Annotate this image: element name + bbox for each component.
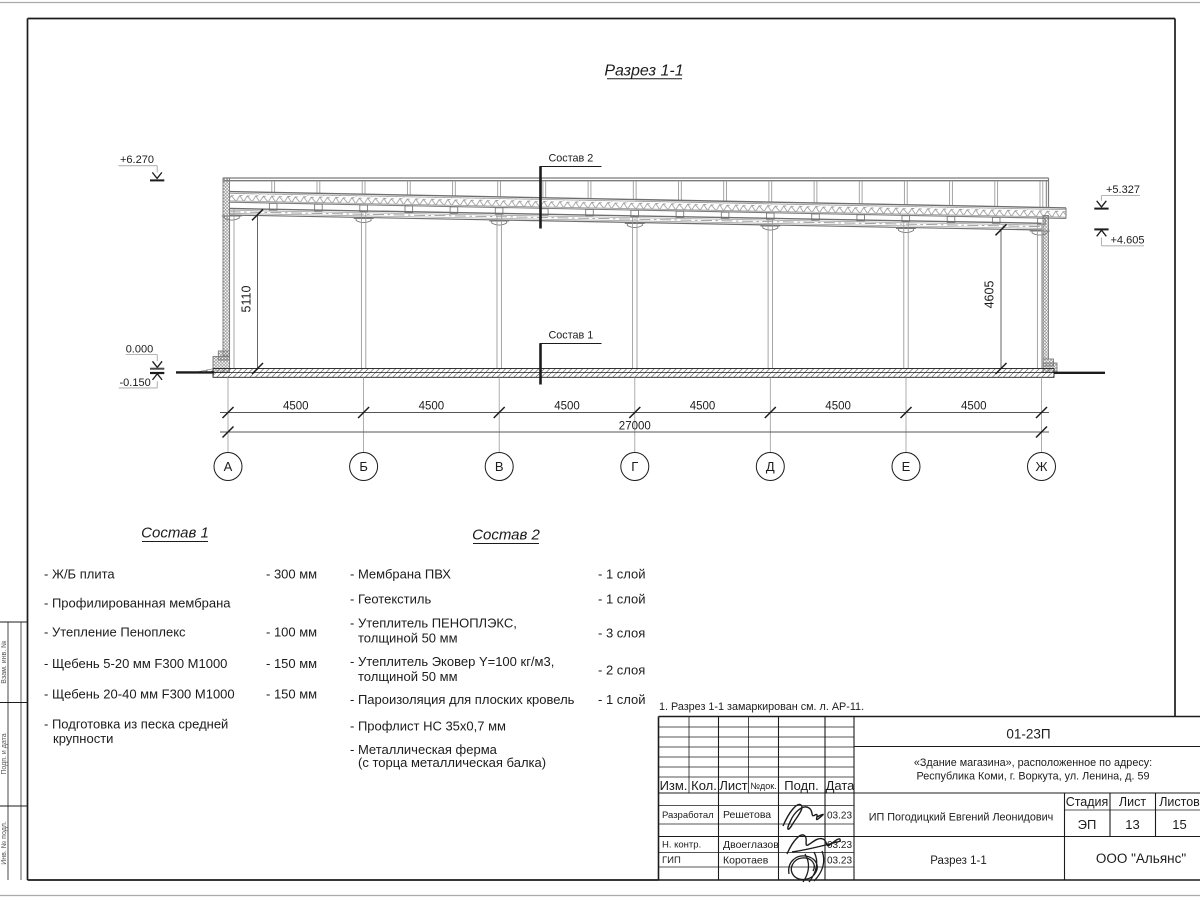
svg-text:- 300 мм: - 300 мм bbox=[266, 566, 317, 581]
svg-text:Стадия: Стадия bbox=[1066, 795, 1109, 809]
svg-text:4500: 4500 bbox=[690, 400, 716, 412]
svg-text:- 150 мм: - 150 мм bbox=[266, 656, 317, 671]
svg-text:ООО "Альянс": ООО "Альянс" bbox=[1096, 851, 1186, 866]
svg-text:4500: 4500 bbox=[419, 400, 445, 412]
svg-text:Б: Б bbox=[359, 459, 368, 474]
svg-text:13: 13 bbox=[1125, 817, 1139, 832]
svg-text:ЭП: ЭП bbox=[1078, 817, 1097, 832]
svg-text:Двоеглазов: Двоеглазов bbox=[723, 839, 779, 851]
svg-text:Состав 1: Состав 1 bbox=[141, 525, 209, 542]
svg-text:Изм.: Изм. bbox=[660, 778, 688, 793]
svg-text:03.23: 03.23 bbox=[827, 811, 852, 822]
svg-text:Состав 1: Состав 1 bbox=[549, 330, 594, 342]
svg-text:- Мембрана ПВХ: - Мембрана ПВХ bbox=[350, 566, 451, 581]
svg-text:+4.605: +4.605 bbox=[1111, 234, 1145, 246]
svg-text:4500: 4500 bbox=[554, 400, 580, 412]
svg-text:- Профлист НС 35х0,7 мм: - Профлист НС 35х0,7 мм bbox=[350, 718, 506, 733]
svg-text:+6.270: +6.270 bbox=[120, 154, 154, 166]
svg-text:В: В bbox=[495, 459, 504, 474]
svg-text:Н. контр.: Н. контр. bbox=[662, 840, 701, 851]
svg-text:крупности: крупности bbox=[53, 731, 113, 746]
svg-text:- Щебень 20-40 мм F300 М1000: - Щебень 20-40 мм F300 М1000 bbox=[44, 687, 235, 702]
svg-text:- 100 мм: - 100 мм bbox=[266, 625, 317, 640]
svg-text:толщиной 50 мм: толщиной 50 мм bbox=[358, 669, 458, 684]
svg-text:- Утепление Пеноплекс: - Утепление Пеноплекс bbox=[44, 625, 186, 640]
svg-text:15: 15 bbox=[1172, 817, 1186, 832]
svg-text:- 1 слой: - 1 слой bbox=[598, 692, 646, 707]
svg-text:- Геотекстиль: - Геотекстиль bbox=[350, 591, 431, 606]
svg-text:(с торца металлическая балка): (с торца металлическая балка) bbox=[358, 755, 546, 770]
svg-text:4500: 4500 bbox=[283, 400, 309, 412]
svg-text:27000: 27000 bbox=[619, 420, 651, 432]
svg-text:+5.327: +5.327 bbox=[1106, 184, 1140, 196]
svg-text:- Профилированная мембрана: - Профилированная мембрана bbox=[44, 595, 231, 610]
svg-text:Дата: Дата bbox=[826, 778, 856, 793]
svg-text:- 2 слоя: - 2 слоя bbox=[598, 662, 645, 677]
svg-text:- 1 слой: - 1 слой bbox=[598, 591, 646, 606]
svg-text:толщиной 50 мм: толщиной 50 мм bbox=[358, 630, 458, 645]
svg-text:- Утеплитель ПЕНОПЛЭКС,: - Утеплитель ПЕНОПЛЭКС, bbox=[350, 615, 517, 630]
svg-text:ИП Погодицкий Евгений Леонидов: ИП Погодицкий Евгений Леонидович bbox=[869, 812, 1054, 824]
svg-text:- 3 слоя: - 3 слоя bbox=[598, 626, 645, 641]
svg-text:Взам. инв. №: Взам. инв. № bbox=[1, 640, 8, 683]
svg-text:Республика Коми, г. Воркута, у: Республика Коми, г. Воркута, ул. Ленина,… bbox=[917, 771, 1150, 783]
svg-text:Состав 2: Состав 2 bbox=[472, 527, 540, 544]
svg-text:03.23: 03.23 bbox=[827, 856, 852, 867]
svg-text:- Пароизоляция для плоских кро: - Пароизоляция для плоских кровель bbox=[350, 692, 575, 707]
svg-text:Разрез 1-1: Разрез 1-1 bbox=[604, 63, 683, 80]
svg-text:Решетова: Решетова bbox=[723, 809, 771, 821]
svg-text:А: А bbox=[224, 459, 233, 474]
svg-text:01-23П: 01-23П bbox=[1006, 727, 1050, 742]
svg-text:Лист: Лист bbox=[1119, 795, 1146, 809]
svg-text:Д: Д bbox=[766, 459, 775, 474]
svg-text:Г: Г bbox=[631, 459, 638, 474]
svg-text:Кол.: Кол. bbox=[691, 778, 717, 793]
svg-text:4500: 4500 bbox=[825, 400, 851, 412]
svg-text:Состав 2: Состав 2 bbox=[549, 153, 594, 165]
svg-text:4500: 4500 bbox=[961, 400, 987, 412]
svg-text:- Подготовка из песка средней: - Подготовка из песка средней bbox=[44, 716, 228, 731]
svg-text:Подп. и дата: Подп. и дата bbox=[1, 733, 8, 774]
svg-text:1. Разрез 1-1 замаркирован см.: 1. Разрез 1-1 замаркирован см. л. АР-11. bbox=[659, 701, 864, 713]
svg-text:- Ж/Б плита: - Ж/Б плита bbox=[44, 566, 115, 581]
svg-text:Ж: Ж bbox=[1035, 459, 1047, 474]
svg-text:Инв. № подл.: Инв. № подл. bbox=[1, 821, 8, 865]
svg-text:Коротаев: Коротаев bbox=[723, 855, 769, 867]
svg-text:№док.: №док. bbox=[750, 781, 776, 791]
svg-text:Е: Е bbox=[902, 459, 911, 474]
svg-text:4605: 4605 bbox=[983, 281, 997, 309]
svg-text:- Щебень 5-20 мм F300 М1000: - Щебень 5-20 мм F300 М1000 bbox=[44, 656, 227, 671]
svg-text:Подп.: Подп. bbox=[784, 778, 819, 793]
svg-text:5110: 5110 bbox=[240, 286, 254, 313]
svg-text:0.000: 0.000 bbox=[126, 344, 154, 356]
svg-text:Разрез 1-1: Разрез 1-1 bbox=[930, 855, 986, 867]
svg-text:- 1 слой: - 1 слой bbox=[598, 566, 646, 581]
svg-text:- 150 мм: - 150 мм bbox=[266, 687, 317, 702]
svg-text:Лист: Лист bbox=[719, 778, 747, 793]
svg-text:«Здание магазина», расположенн: «Здание магазина», расположенное по адре… bbox=[914, 757, 1152, 769]
svg-text:ГИП: ГИП bbox=[662, 855, 681, 866]
svg-text:Листов: Листов bbox=[1159, 795, 1200, 809]
svg-text:Разработал: Разработал bbox=[662, 810, 714, 821]
svg-text:- Утеплитель Эковер Y=100 кг/м: - Утеплитель Эковер Y=100 кг/м3, bbox=[350, 654, 554, 669]
